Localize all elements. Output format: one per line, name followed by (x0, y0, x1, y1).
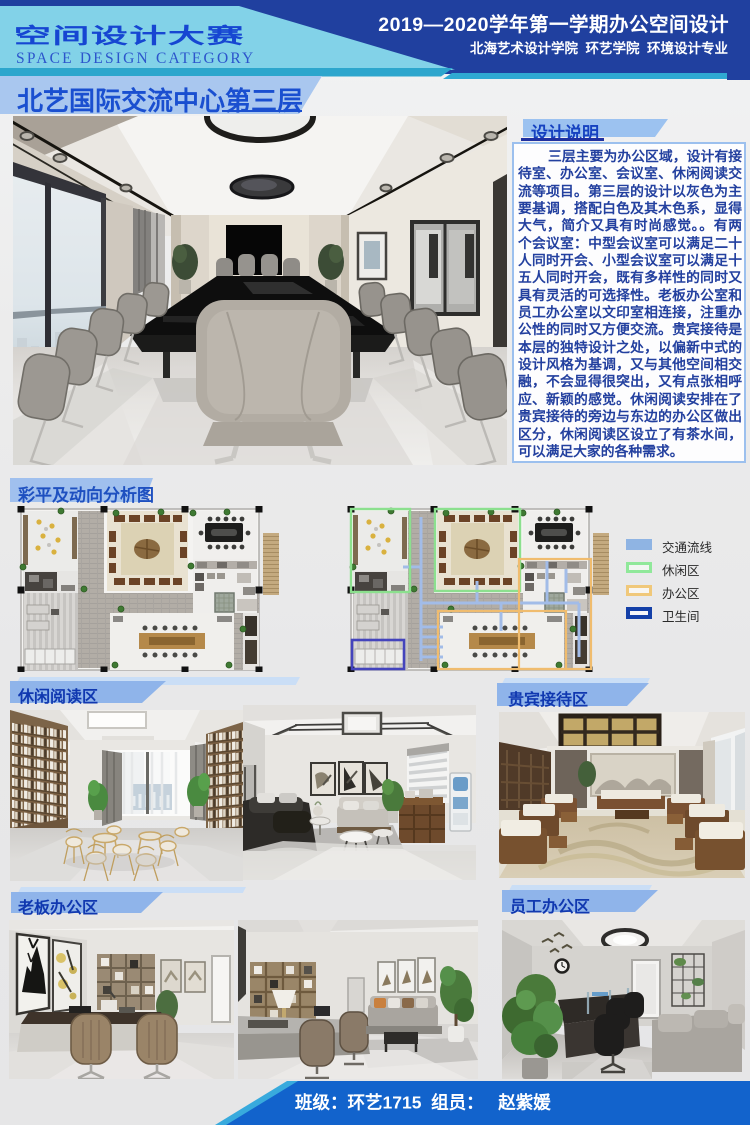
svg-text:班级：环艺1715 组员： 赵紫媛: 班级：环艺1715 组员： 赵紫媛 (295, 1093, 551, 1113)
